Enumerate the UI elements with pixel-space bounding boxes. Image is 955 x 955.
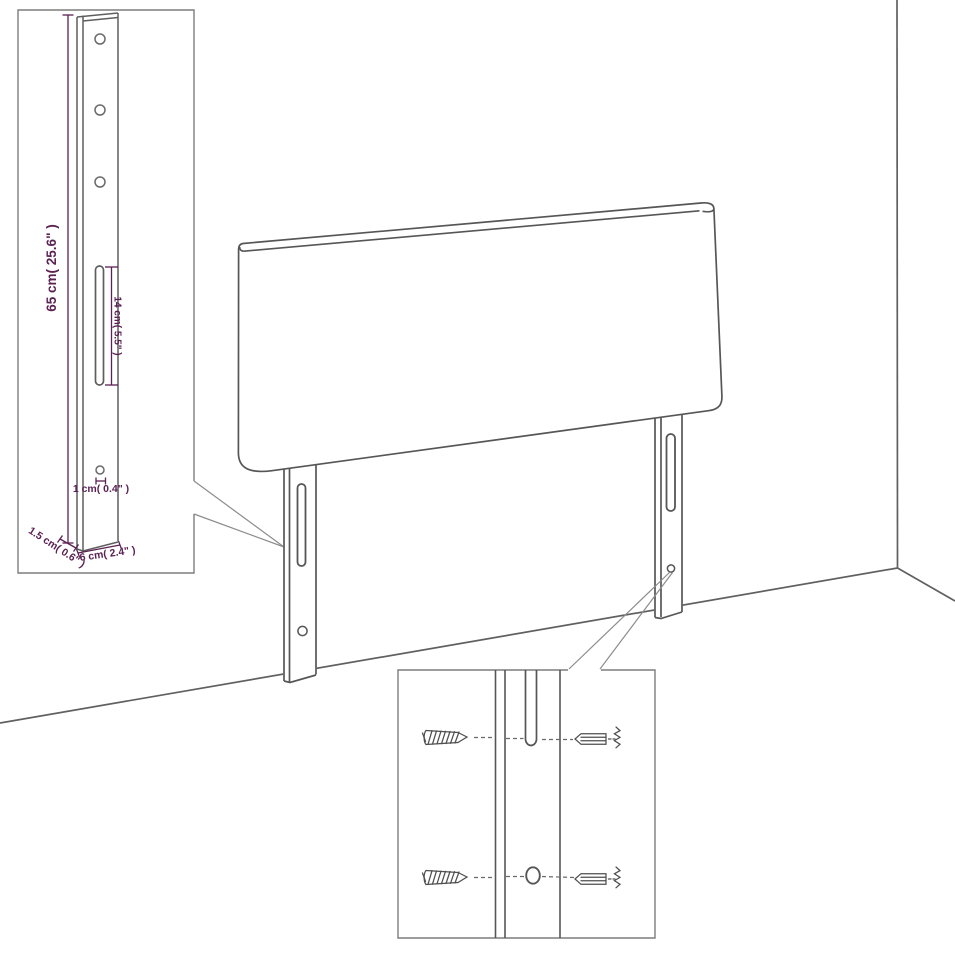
detail-hole xyxy=(526,867,540,883)
wall-plug-lower-icon xyxy=(575,867,620,888)
headboard-outline xyxy=(238,203,722,472)
leg-hole-bottom xyxy=(95,177,105,187)
callout-line-upper xyxy=(194,481,284,547)
left-leg-hole xyxy=(298,626,307,635)
dimension-label-leg-height: 65 cm( 25.6" ) xyxy=(44,224,59,311)
leg-top-edge xyxy=(77,13,118,17)
screw-lower-icon xyxy=(423,871,468,885)
right-leg-slot xyxy=(667,434,676,511)
leg-top-inner-edge xyxy=(83,18,118,22)
right-leg-hole xyxy=(667,565,674,572)
screw-upper-icon xyxy=(423,731,468,745)
product-dimension-diagram: 65 cm( 25.6" ) 14 cm( 5.5" ) 1 cm( 0.4" … xyxy=(0,0,955,955)
dimension-label-leg-width: 6 cm( 2.4" ) xyxy=(79,544,136,564)
left-leg-slot xyxy=(298,484,306,566)
dimension-label-hole-diameter: 1 cm( 0.4" ) xyxy=(73,483,129,495)
floor-line-right xyxy=(898,568,955,601)
detail-slot xyxy=(526,670,537,746)
leg-dimension-inset: 65 cm( 25.6" ) 14 cm( 5.5" ) 1 cm( 0.4" … xyxy=(18,10,194,573)
diagram-canvas: 65 cm( 25.6" ) 14 cm( 5.5" ) 1 cm( 0.4" … xyxy=(0,0,955,955)
floor-line-left xyxy=(0,568,898,723)
left-mounting-leg xyxy=(283,453,317,683)
inset-border xyxy=(398,670,655,938)
callout-line-right xyxy=(600,573,673,670)
headboard-panel xyxy=(238,203,722,472)
wall-corner-vertical-line xyxy=(897,0,898,568)
dimension-label-slot-length: 14 cm( 5.5" ) xyxy=(112,296,123,355)
leg-hole-middle xyxy=(95,105,105,115)
callout-line-lower xyxy=(194,514,284,547)
leg-slot xyxy=(96,266,104,385)
right-mounting-leg xyxy=(654,406,683,619)
lower-dash-right xyxy=(542,877,574,878)
wall-plug-upper-icon xyxy=(575,727,620,748)
leg-small-hole xyxy=(96,466,104,474)
connector-dashes xyxy=(474,738,574,878)
mounting-detail-inset xyxy=(398,670,655,938)
dimension-label-leg-thickness: 1.5 cm( 0.6" ) xyxy=(26,525,87,571)
inset-dimension-lines xyxy=(58,15,122,557)
leg-hole-top xyxy=(95,34,105,44)
callout-line-left xyxy=(569,572,670,669)
inset-to-leg-callout xyxy=(194,481,284,547)
detail-leg-strip xyxy=(496,670,561,938)
